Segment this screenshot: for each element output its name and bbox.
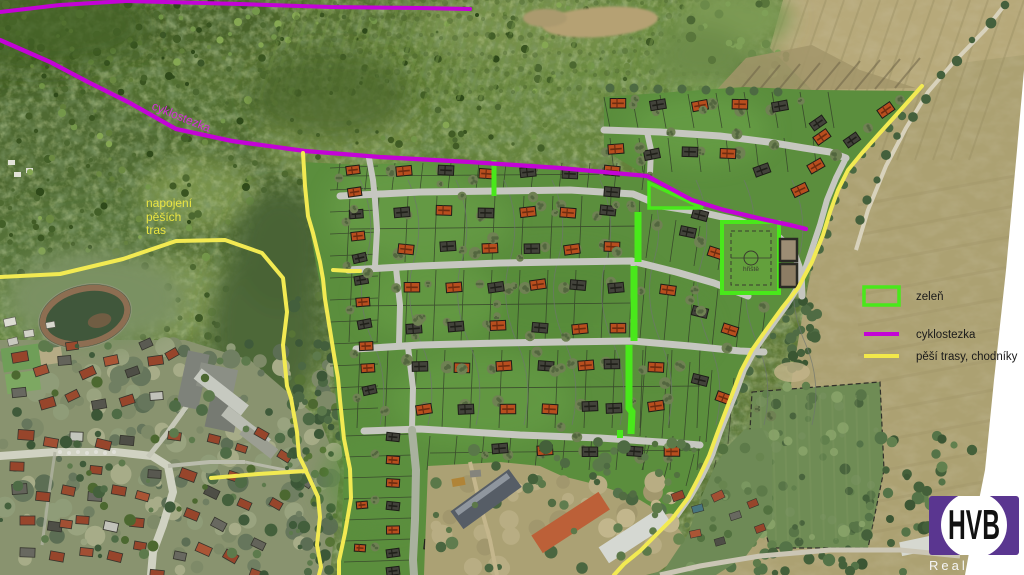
svg-text:hřiště: hřiště [743,266,759,273]
svg-text:zeleň: zeleň [916,291,944,303]
svg-text:tras: tras [146,223,166,237]
svg-text:cyklostezka: cyklostezka [916,329,976,341]
svg-text:pěších: pěších [146,210,181,224]
svg-text:napojení: napojení [146,196,193,210]
svg-text:Real: Real [929,558,968,573]
svg-text:pěší trasy, chodníky: pěší trasy, chodníky [916,351,1018,363]
svg-text:HVB: HVB [948,501,1000,548]
